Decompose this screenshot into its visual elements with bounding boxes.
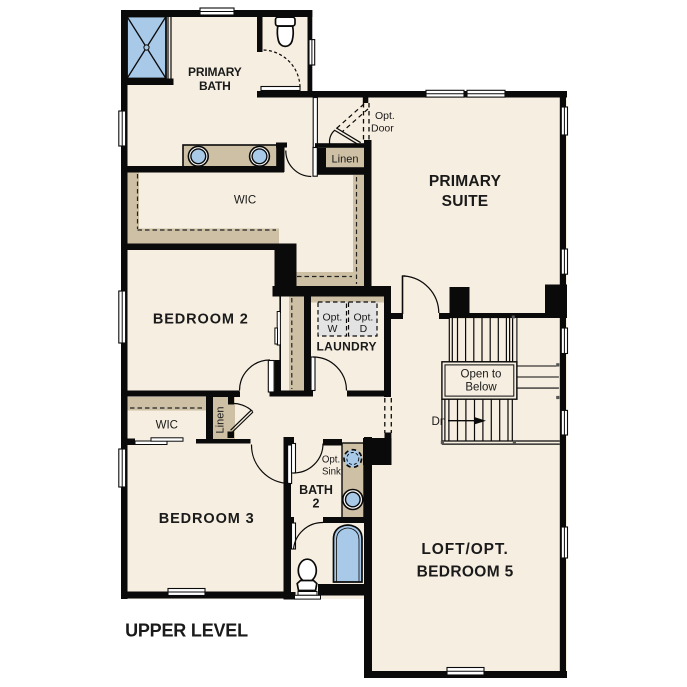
svg-text:WIC: WIC: [156, 419, 178, 431]
svg-text:Below: Below: [465, 382, 497, 394]
svg-text:2: 2: [313, 496, 320, 510]
svg-text:D: D: [360, 323, 368, 335]
svg-text:W: W: [327, 323, 337, 335]
svg-text:Sink: Sink: [322, 466, 341, 477]
svg-text:Linen: Linen: [332, 153, 359, 165]
svg-text:BEDROOM 3: BEDROOM 3: [159, 511, 255, 527]
svg-text:UPPER LEVEL: UPPER LEVEL: [125, 621, 248, 641]
svg-text:BEDROOM 5: BEDROOM 5: [417, 563, 514, 580]
svg-text:BATH: BATH: [199, 79, 231, 93]
svg-text:BEDROOM 2: BEDROOM 2: [153, 311, 249, 327]
svg-text:LAUNDRY: LAUNDRY: [317, 340, 377, 354]
svg-text:BATH: BATH: [299, 483, 333, 497]
svg-text:Opt.: Opt.: [322, 455, 340, 466]
svg-text:Open to: Open to: [461, 368, 502, 380]
svg-text:WIC: WIC: [234, 195, 256, 207]
svg-text:PRIMARY: PRIMARY: [188, 65, 242, 79]
svg-text:Opt.: Opt.: [322, 312, 342, 324]
svg-text:Linen: Linen: [215, 407, 227, 434]
svg-text:SUITE: SUITE: [442, 193, 489, 210]
svg-text:Opt.: Opt.: [375, 110, 395, 122]
svg-text:PRIMARY: PRIMARY: [429, 173, 502, 190]
svg-text:Door: Door: [371, 122, 394, 134]
svg-text:LOFT/OPT.: LOFT/OPT.: [421, 541, 508, 558]
svg-text:Opt.: Opt.: [353, 312, 373, 324]
svg-text:Dn: Dn: [432, 415, 447, 428]
